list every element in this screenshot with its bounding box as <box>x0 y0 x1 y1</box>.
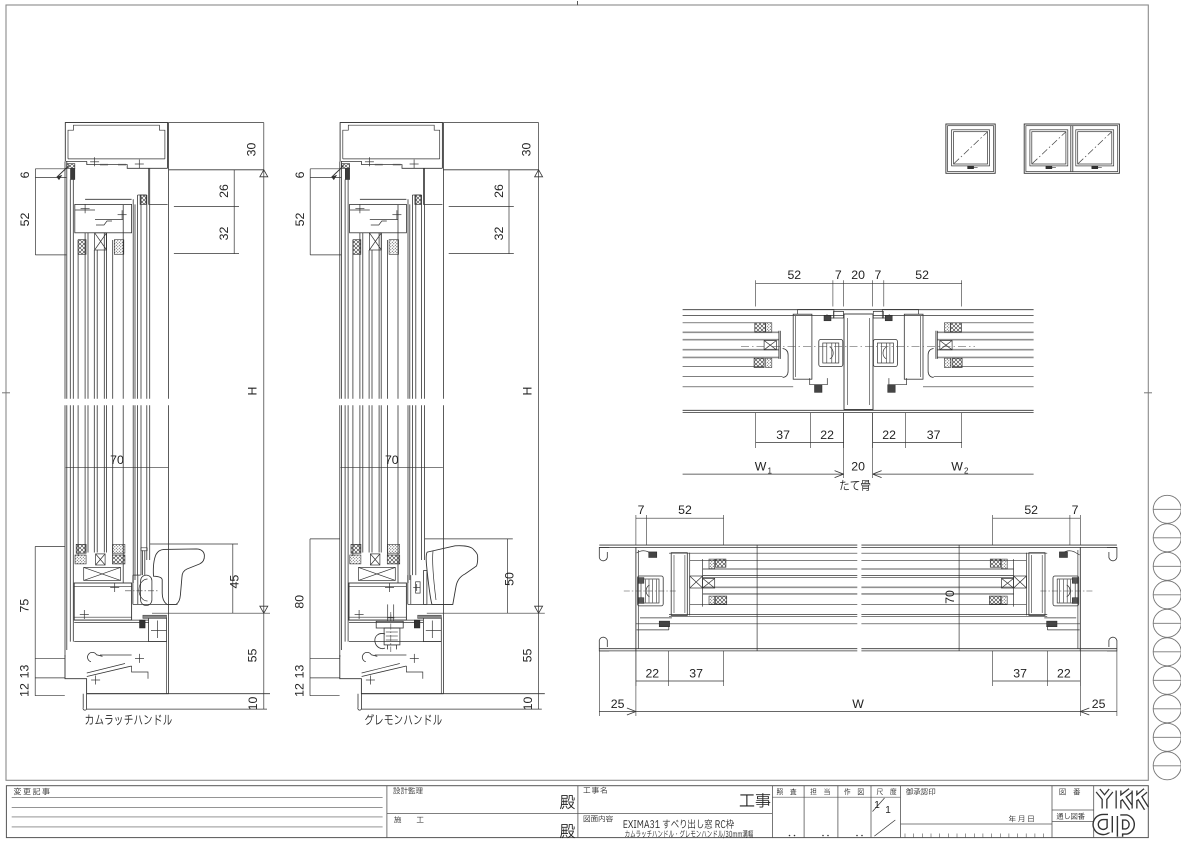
svg-text:37: 37 <box>776 428 790 442</box>
svg-text:10: 10 <box>521 697 535 711</box>
svg-text:12: 12 <box>18 683 32 697</box>
svg-text:32: 32 <box>217 227 231 241</box>
svg-text:55: 55 <box>520 649 534 663</box>
svg-text:30: 30 <box>519 143 533 157</box>
svg-text:30: 30 <box>245 143 259 157</box>
svg-text:70: 70 <box>943 590 957 604</box>
svg-text:W: W <box>755 460 767 474</box>
svg-text:22: 22 <box>645 667 659 681</box>
svg-text:50: 50 <box>503 572 517 586</box>
svg-text:37: 37 <box>927 428 941 442</box>
svg-text:1: 1 <box>874 800 880 811</box>
svg-text:7: 7 <box>638 503 645 517</box>
svg-text:26: 26 <box>492 184 506 198</box>
svg-text:7: 7 <box>835 268 842 282</box>
svg-text:1: 1 <box>768 467 773 476</box>
svg-text:37: 37 <box>1013 667 1027 681</box>
svg-text:W: W <box>852 697 864 711</box>
svg-text:H: H <box>520 387 534 396</box>
svg-text:W: W <box>951 460 963 474</box>
svg-text:22: 22 <box>820 428 834 442</box>
svg-text:20: 20 <box>851 460 865 474</box>
svg-text:32: 32 <box>492 227 506 241</box>
svg-text:1: 1 <box>885 805 891 816</box>
svg-text:6: 6 <box>18 171 32 178</box>
svg-text:22: 22 <box>1057 667 1071 681</box>
svg-text:7: 7 <box>874 268 881 282</box>
svg-text:7: 7 <box>1072 503 1079 517</box>
svg-text:80: 80 <box>292 595 306 609</box>
svg-text:55: 55 <box>246 649 260 663</box>
svg-text:26: 26 <box>217 184 231 198</box>
svg-text:13: 13 <box>292 665 306 679</box>
svg-text:52: 52 <box>915 268 929 282</box>
svg-text:52: 52 <box>678 503 692 517</box>
svg-text:13: 13 <box>18 665 32 679</box>
svg-text:52: 52 <box>18 213 32 227</box>
svg-text:10: 10 <box>246 697 260 711</box>
svg-text:37: 37 <box>689 667 703 681</box>
svg-text:6: 6 <box>293 171 307 178</box>
svg-text:2: 2 <box>964 467 969 476</box>
svg-text:52: 52 <box>787 268 801 282</box>
svg-text:45: 45 <box>228 575 242 589</box>
svg-text:70: 70 <box>110 453 124 467</box>
svg-text:52: 52 <box>293 213 307 227</box>
svg-text:25: 25 <box>1092 697 1106 711</box>
svg-text:75: 75 <box>18 599 32 613</box>
svg-text:H: H <box>246 387 260 396</box>
svg-text:22: 22 <box>882 428 896 442</box>
svg-text:52: 52 <box>1024 503 1038 517</box>
svg-text:20: 20 <box>851 268 865 282</box>
svg-text:70: 70 <box>385 453 399 467</box>
svg-text:12: 12 <box>292 683 306 697</box>
svg-text:25: 25 <box>611 697 625 711</box>
